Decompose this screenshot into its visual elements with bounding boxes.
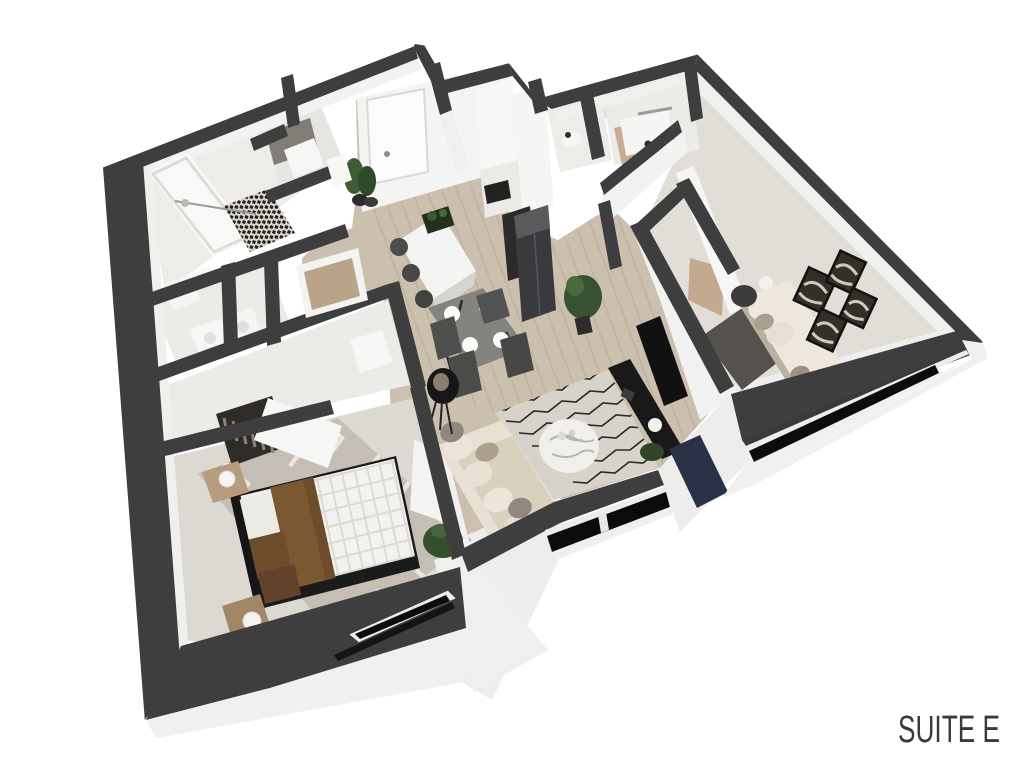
- svg-text:SUITE E: SUITE E: [898, 709, 1000, 751]
